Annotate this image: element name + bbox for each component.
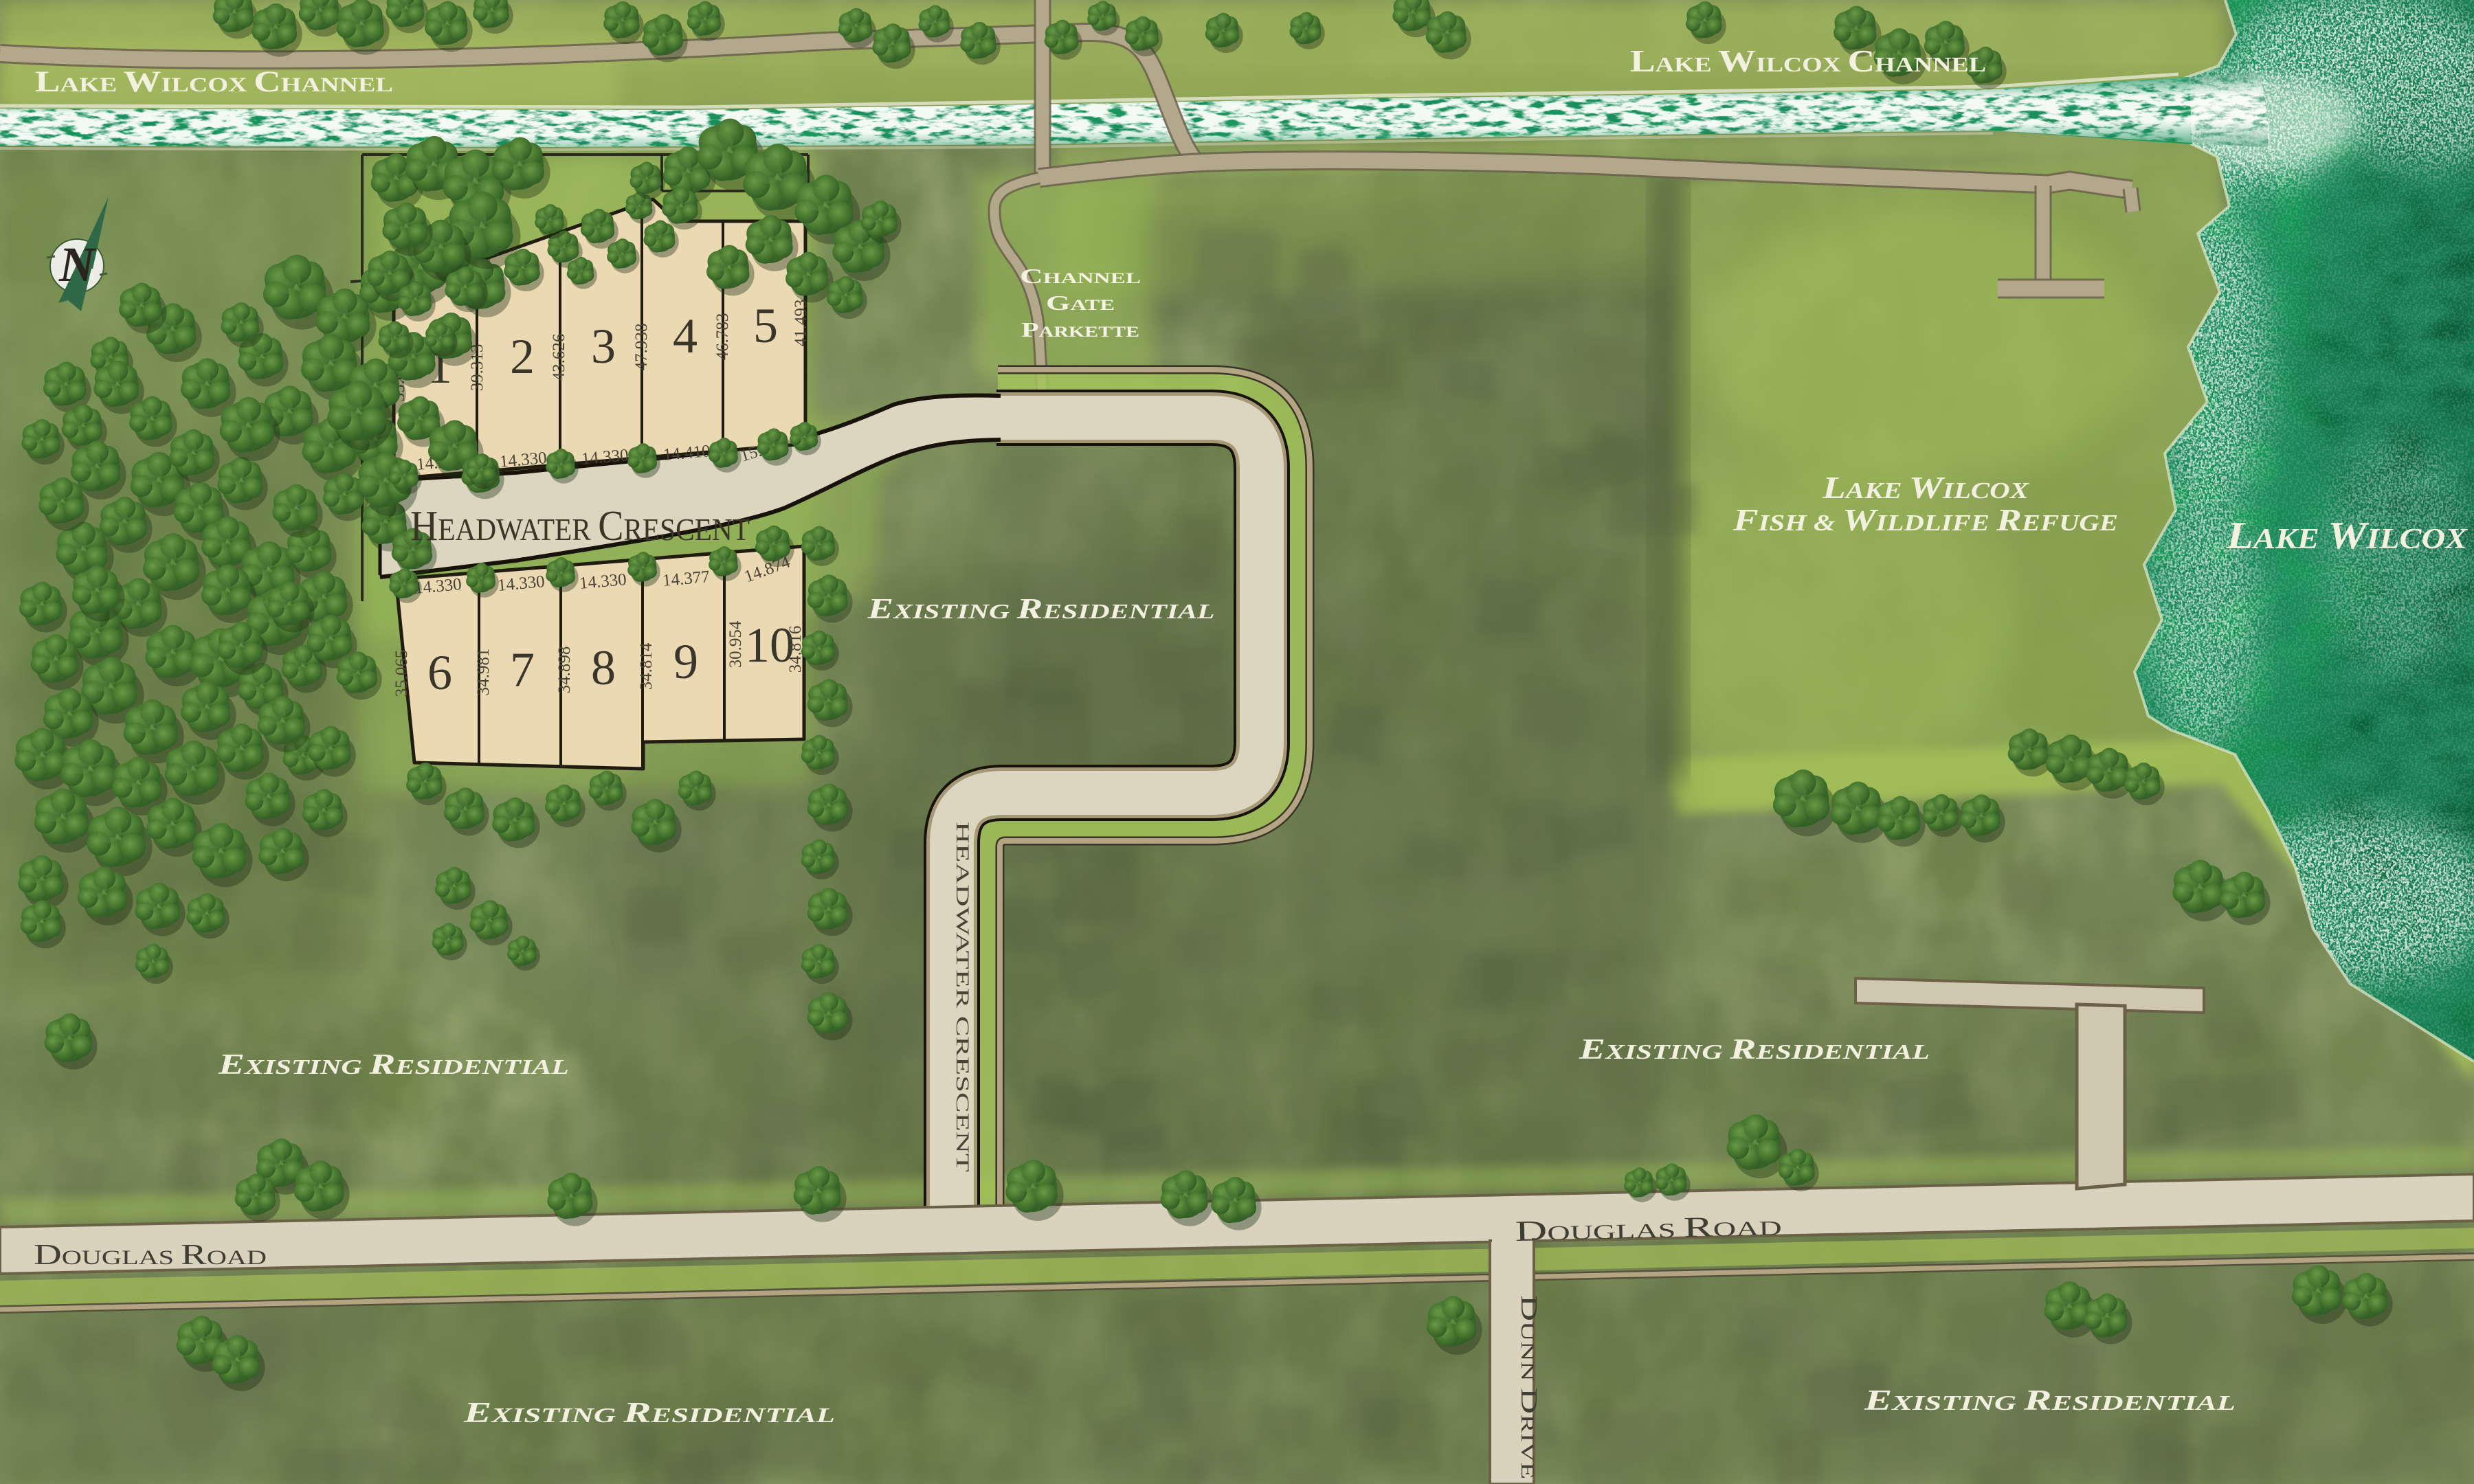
svg-text:5: 5 — [753, 298, 778, 353]
svg-text:6: 6 — [427, 645, 452, 700]
svg-text:47.938: 47.938 — [632, 324, 651, 371]
svg-text:34.814: 34.814 — [637, 642, 656, 690]
svg-text:3: 3 — [591, 319, 616, 374]
svg-text:4: 4 — [673, 308, 698, 363]
svg-text:2: 2 — [510, 329, 535, 384]
svg-text:N: N — [58, 237, 97, 292]
svg-text:46.783: 46.783 — [713, 313, 732, 361]
svg-text:35.065: 35.065 — [392, 650, 411, 697]
svg-text:34.898: 34.898 — [555, 647, 574, 694]
svg-text:34.981: 34.981 — [474, 649, 493, 696]
svg-text:HEADWATER CRESCENT: HEADWATER CRESCENT — [952, 822, 972, 1172]
svg-text:41.493: 41.493 — [792, 300, 810, 347]
svg-text:43.626: 43.626 — [550, 334, 568, 381]
svg-text:7: 7 — [510, 642, 535, 697]
svg-text:30.954: 30.954 — [726, 620, 745, 668]
svg-text:8: 8 — [591, 640, 616, 695]
svg-text:9: 9 — [673, 634, 698, 689]
